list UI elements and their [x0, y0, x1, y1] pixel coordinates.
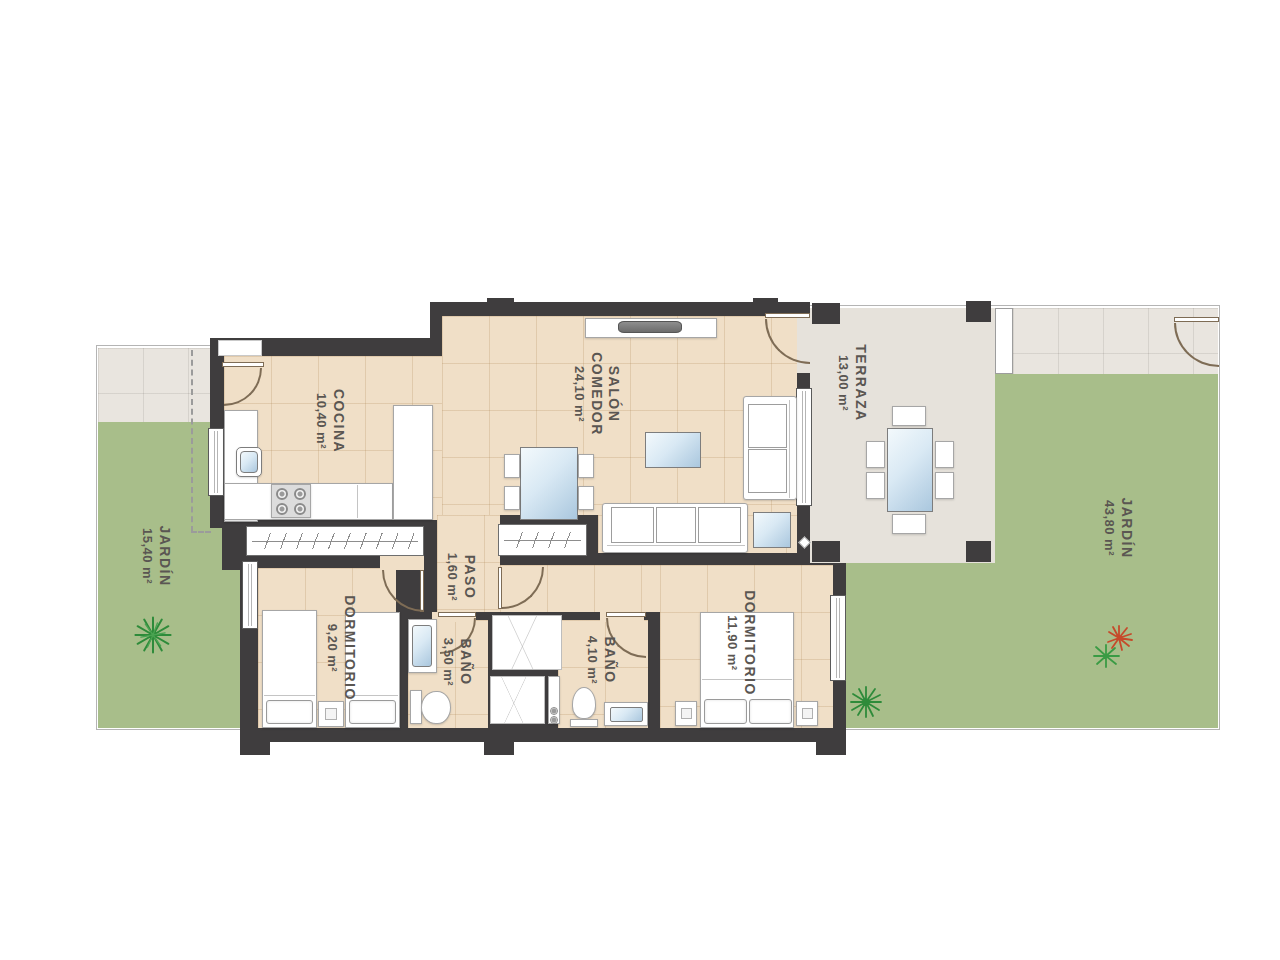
armchair-backrest: [789, 400, 790, 498]
boundary-left-top: [96, 345, 212, 346]
facade-pillar: [484, 742, 514, 755]
bedroom1-window: [242, 561, 258, 629]
garden-gate-leaf: [1174, 317, 1219, 322]
walkway-divider: [995, 308, 1013, 374]
nightstand: [675, 701, 697, 726]
single-bed: [262, 610, 317, 728]
terraza-pillar-br: [966, 541, 991, 562]
boundary-dashed-horizontal: [191, 531, 211, 533]
stove-burner: [294, 488, 306, 500]
bed-fold-line: [264, 695, 315, 696]
entrance-door-leaf: [222, 362, 264, 367]
terrace-chair: [892, 514, 926, 534]
sofa-cushion: [698, 507, 741, 543]
terraza-pillar-bl: [812, 541, 840, 562]
label-paso: PASO 1,60 m²: [444, 553, 478, 601]
dining-chair: [504, 486, 520, 510]
tv-icon: [618, 321, 682, 333]
entrance-patio: [98, 348, 210, 422]
terrace-table: [887, 428, 933, 512]
label-cocina: COCINA 10,40 m²: [313, 389, 347, 453]
bedroom1-door-gap: [380, 556, 424, 570]
flowering-shrub-icon: [1086, 620, 1140, 674]
nightstand: [796, 701, 818, 726]
shelf-knob: [550, 707, 558, 715]
shower-bottom: [490, 676, 545, 724]
nightstand-knob: [681, 708, 692, 719]
bath1-toilet-bowl: [421, 691, 451, 724]
bath2-door-leaf: [606, 612, 646, 617]
terrace-chair: [935, 472, 954, 499]
dining-table: [520, 447, 578, 520]
boundary-right-top: [810, 305, 1219, 306]
label-jardin-izquierdo: JARDÍN 15,40 m²: [139, 525, 173, 586]
kitchen-sink: [236, 447, 262, 477]
terraza-pillar-tl: [812, 303, 840, 324]
label-jardin-derecho: JARDÍN 43,80 m²: [1101, 497, 1135, 558]
label-bano1: BAÑO 3,50 m²: [440, 638, 474, 686]
dining-chair: [504, 454, 520, 478]
label-bano2: BAÑO 4,10 m²: [584, 636, 618, 684]
stove-burner: [276, 503, 288, 515]
nightstand: [318, 701, 344, 727]
sofa-cushion: [611, 507, 654, 543]
terraza-pillar-tr: [966, 301, 991, 322]
facade-pillar: [816, 742, 846, 755]
shower-top: [492, 615, 562, 670]
tree-icon: [846, 682, 886, 722]
kitchen-window: [208, 428, 224, 496]
salon-window: [796, 388, 812, 506]
boundary-dashed-vertical: [191, 350, 193, 532]
facade-pillar: [240, 742, 270, 755]
tree-icon: [131, 613, 175, 657]
terrace-chair: [892, 406, 926, 426]
wardrobe-hall-left: [246, 526, 424, 556]
bath2-toilet-tank: [570, 719, 598, 727]
bath1-sink: [412, 625, 432, 667]
kitchen-counter-divider: [357, 485, 358, 518]
bath1-vanity: [408, 619, 437, 673]
bed-pillow: [749, 699, 792, 724]
nightstand-knob: [802, 708, 813, 719]
kitchen-sink-basin: [240, 451, 258, 473]
dining-chair: [578, 486, 594, 510]
kitchen-peninsula: [393, 405, 433, 520]
entrance-threshold: [218, 340, 262, 356]
stove-burner: [276, 488, 288, 500]
armchair-cushion: [748, 449, 787, 493]
wardrobe-hall-right: [498, 524, 587, 556]
nightstand-knob: [325, 708, 337, 720]
dining-chair: [578, 454, 594, 478]
bath-shelf-column: [548, 676, 560, 724]
label-dormitorio1: DORMITORIO 9,20 m²: [324, 595, 358, 701]
floor-plan: COCINA 10,40 m² SALÓN COMEDOR 24,10 m² T…: [0, 0, 1280, 960]
armchair-cushion: [748, 404, 787, 448]
kitchen-stove: [271, 484, 311, 518]
bath1-door-leaf: [438, 612, 476, 617]
bath2-basin: [604, 702, 648, 726]
boundary-left: [96, 345, 97, 730]
bed-pillow: [704, 699, 747, 724]
bath2-sink: [610, 707, 643, 722]
side-table: [753, 512, 791, 548]
terraza-door-leaf: [765, 313, 810, 318]
boundary-left-bottom: [96, 729, 244, 730]
label-salon: SALÓN COMEDOR 24,10 m²: [571, 352, 622, 436]
bed-pillow: [349, 700, 396, 724]
armchair: [743, 396, 797, 500]
terrace-chair: [866, 441, 885, 468]
coffee-table: [645, 432, 701, 468]
stove-burner: [294, 503, 306, 515]
shelf-knob: [550, 716, 558, 724]
sofa-backrest: [607, 545, 745, 546]
boundary-right-bottom: [846, 729, 1220, 730]
bed-pillow: [266, 700, 313, 724]
sofa-cushion: [656, 507, 696, 543]
sofa: [602, 503, 748, 553]
label-terraza: TERRAZA 13,00 m²: [835, 344, 869, 421]
bath2-toilet-bowl: [572, 687, 596, 719]
bedroom2-window: [830, 595, 846, 681]
boundary-right: [1219, 305, 1220, 730]
label-dormitorio2: DORMITORIO 11,90 m²: [724, 590, 758, 696]
terrace-chair: [866, 472, 885, 499]
terrace-chair: [935, 441, 954, 468]
